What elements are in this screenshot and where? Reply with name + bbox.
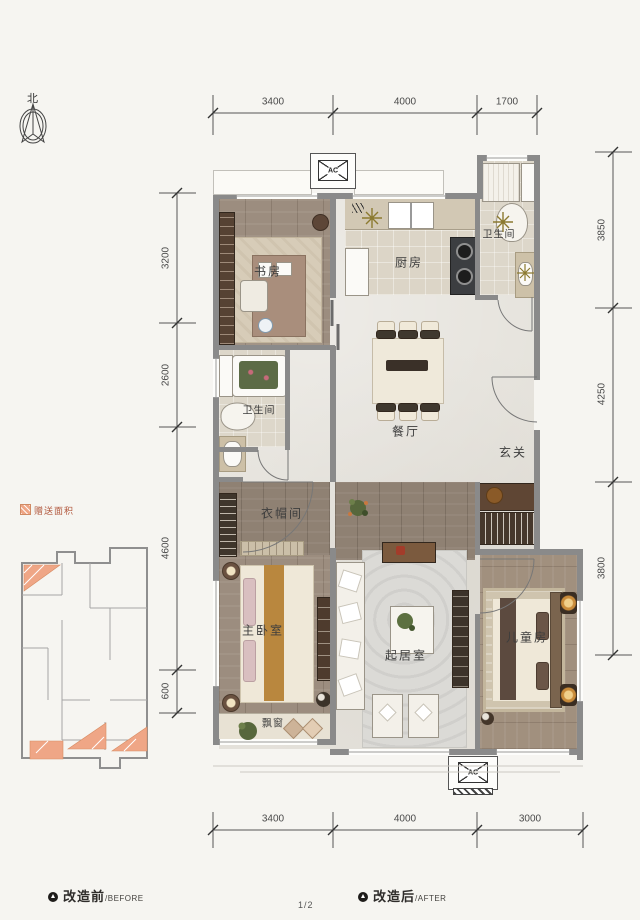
- seal-icon: [358, 892, 368, 902]
- room-label-master: 主卧室: [242, 622, 284, 639]
- room-label-bath-top: 卫生间: [483, 226, 516, 241]
- dim-left-2: 2600: [161, 364, 172, 386]
- north-label: 北: [27, 90, 38, 106]
- caption-before: 改造前 /BEFORE: [48, 886, 144, 905]
- seal-icon: [48, 892, 58, 902]
- caption-after-zh: 改造后: [373, 886, 415, 905]
- bath-top-door-arc: [498, 297, 532, 331]
- dim-top-1: 3400: [262, 97, 284, 108]
- bonus-areas: [24, 565, 147, 759]
- dim-bottom-3: 3000: [519, 814, 541, 825]
- dim-bottom-1: 3400: [262, 814, 284, 825]
- before-plan: [22, 548, 147, 768]
- kids-door-arc: [480, 559, 534, 613]
- room-label-dining: 餐厅: [392, 423, 420, 440]
- room-label-bath-mid: 卫生间: [243, 402, 276, 417]
- dim-top-2: 4000: [394, 97, 416, 108]
- caption-before-zh: 改造前: [63, 886, 105, 905]
- room-label-cloakroom: 衣帽间: [261, 505, 303, 522]
- caption-before-en: /BEFORE: [105, 894, 144, 903]
- dim-left-4: 600: [161, 683, 172, 700]
- caption-after-en: /AFTER: [415, 894, 446, 903]
- linework-overlay: [0, 0, 640, 920]
- room-label-kitchen: 厨房: [395, 254, 423, 271]
- dim-right-2: 4250: [597, 383, 608, 405]
- dim-left-3: 4600: [161, 537, 172, 559]
- dim-top-3: 1700: [496, 97, 518, 108]
- dim-top: [208, 95, 542, 135]
- dim-right-3: 3800: [597, 557, 608, 579]
- room-label-bay: 飘窗: [262, 715, 284, 730]
- bonus-hatch: [24, 565, 136, 753]
- door-arcs: [243, 297, 537, 613]
- room-label-foyer: 玄关: [499, 444, 527, 461]
- sliding-door: [332, 300, 338, 350]
- bonus-area-swatch: [20, 504, 31, 515]
- north-compass: [20, 104, 46, 143]
- page-number: 1/2: [298, 900, 314, 910]
- dim-bottom-2: 4000: [394, 814, 416, 825]
- bonus-area-label: 赠送面积: [34, 504, 74, 517]
- floor-plan-page: AC AC: [0, 0, 640, 920]
- caption-after: 改造后 /AFTER: [358, 886, 446, 905]
- entry-door-arc: [492, 377, 537, 422]
- room-label-study: 书房: [254, 263, 282, 280]
- room-label-kids: 儿童房: [506, 629, 548, 646]
- room-label-living: 起居室: [385, 647, 427, 664]
- bath-mid-door-arc: [258, 450, 288, 480]
- dim-right-1: 3850: [597, 219, 608, 241]
- dim-left-1: 3200: [161, 247, 172, 269]
